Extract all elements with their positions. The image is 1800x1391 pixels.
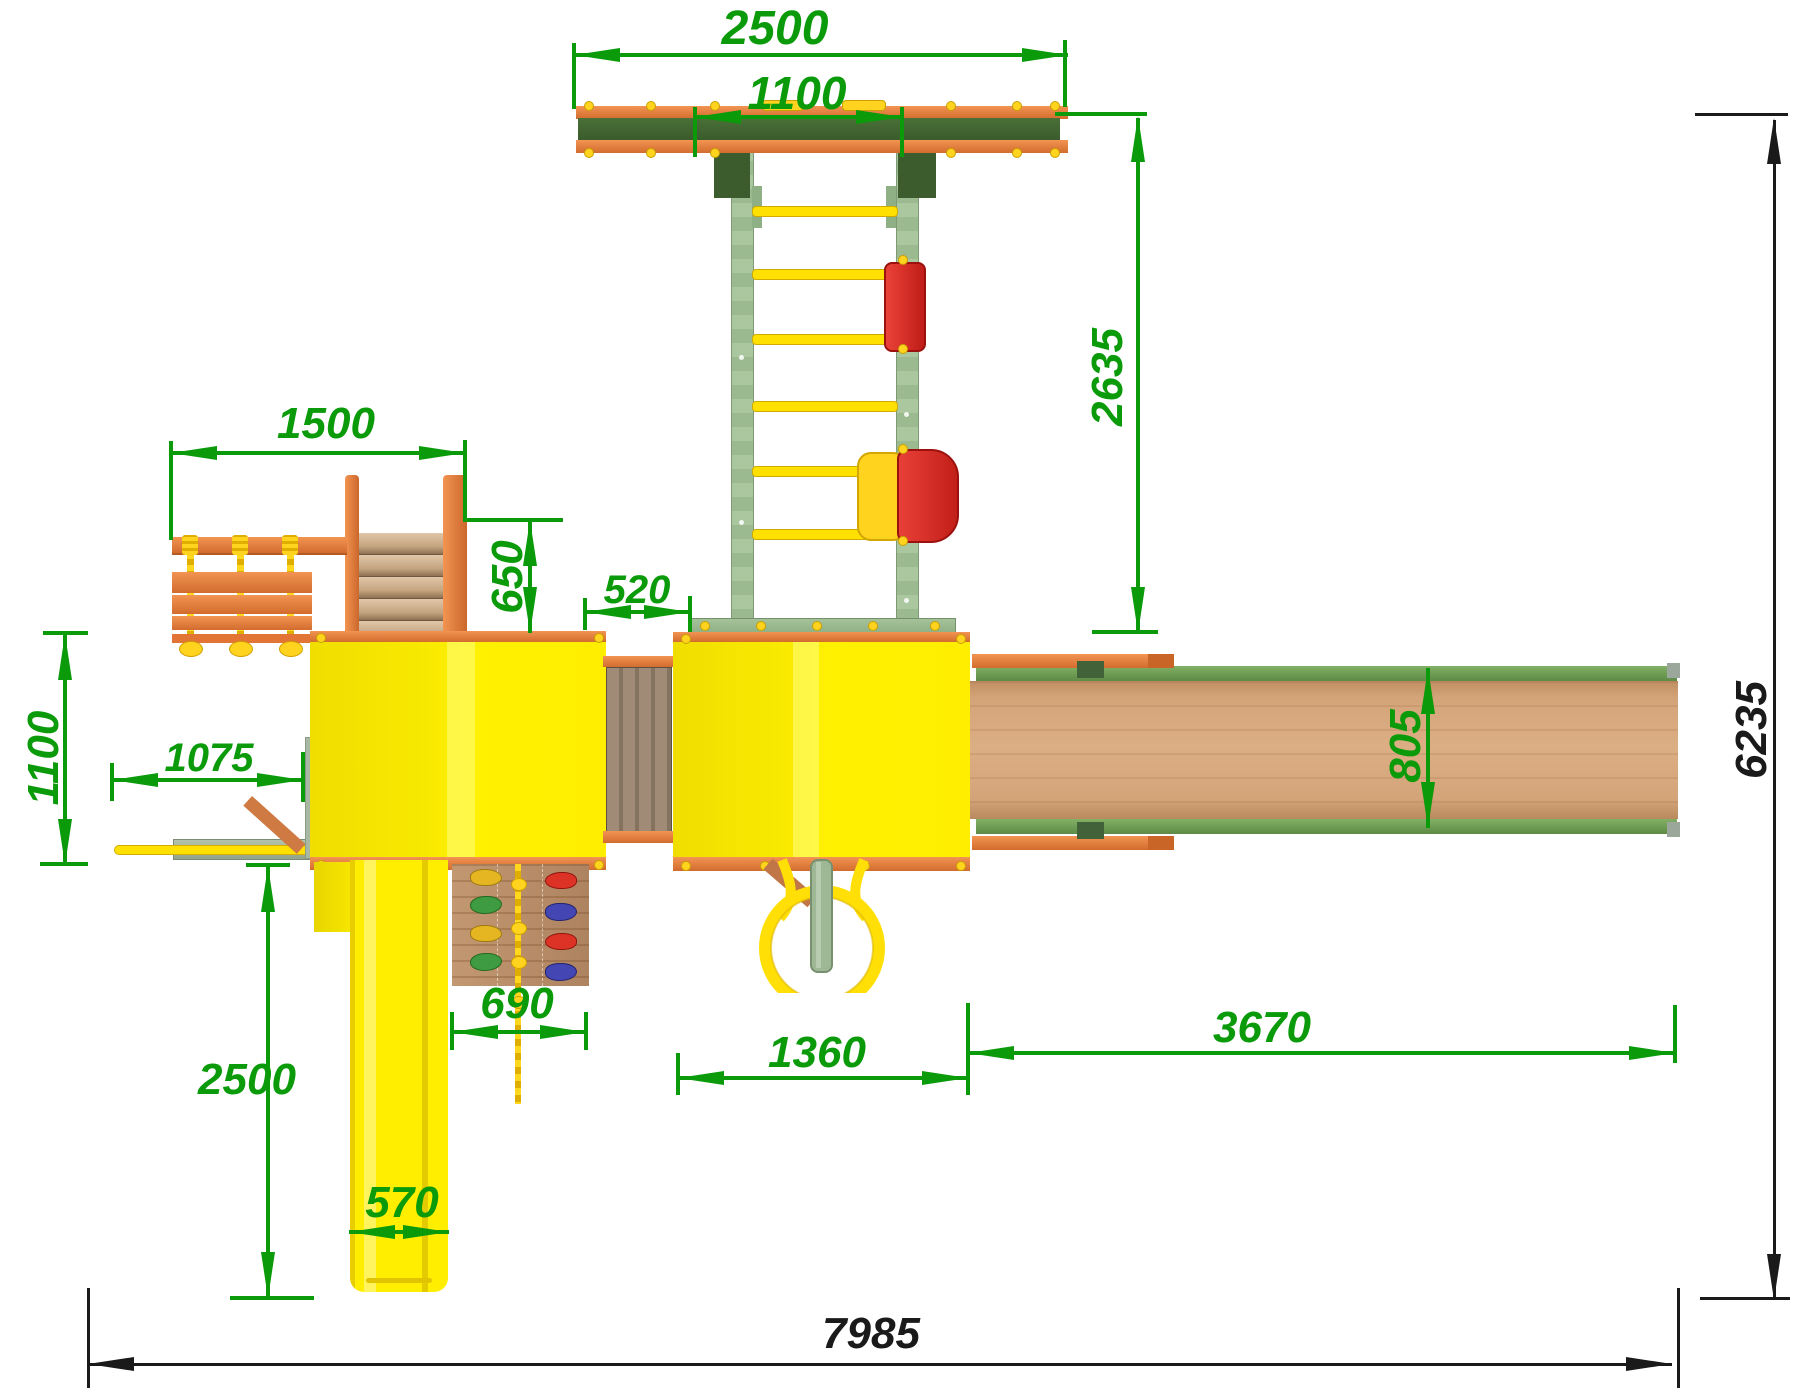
playground-plan-drawing: 2500 1100 2635 1500 650 (0, 0, 1800, 1391)
ext-line (1673, 1005, 1677, 1063)
stair-step (359, 555, 443, 578)
ext-line (1695, 113, 1788, 116)
ext-line (43, 631, 88, 635)
ext-line (583, 598, 587, 630)
dim-label: 1500 (277, 402, 375, 446)
bolt (646, 148, 656, 158)
ext-line (450, 1012, 454, 1050)
seat-clip (898, 444, 908, 454)
rope-wrap (282, 535, 298, 555)
bolt (646, 101, 656, 111)
ext-line (301, 752, 305, 802)
ladder-rung (752, 334, 898, 345)
bolt (930, 621, 940, 631)
bolt (1012, 101, 1022, 111)
bolt (584, 148, 594, 158)
platform1-shine (447, 642, 475, 857)
dim-label: 520 (604, 570, 671, 610)
ext-line (688, 596, 692, 632)
rope-ladder-beam (172, 537, 347, 555)
dim-label: 690 (480, 982, 553, 1026)
big-slide-rail-top (972, 654, 1174, 668)
ext-line (87, 1288, 90, 1388)
bolt (868, 621, 878, 631)
ext-line (1063, 40, 1067, 107)
rope-ladder-plank (172, 616, 312, 630)
ext-line (676, 1053, 680, 1095)
big-slide-connector (1077, 822, 1104, 839)
bolt (594, 860, 604, 870)
dim-label: 650 (486, 540, 530, 613)
stair-step (359, 599, 443, 622)
big-slide-rail-bottom (972, 836, 1174, 850)
ext-line (463, 518, 563, 522)
rope-wrap (232, 535, 248, 555)
small-slide-entry (314, 862, 354, 932)
ext-line (1677, 1288, 1680, 1388)
ext-line (230, 1296, 314, 1300)
ext-line (40, 862, 88, 866)
dim-label: 1075 (165, 738, 254, 778)
small-slide-end-line (366, 1278, 432, 1283)
stair-step (359, 533, 443, 556)
bolt (1012, 148, 1022, 158)
ext-line (572, 43, 576, 109)
bolt (956, 634, 966, 644)
tire-post-highlight (816, 862, 821, 968)
bridge-deck (606, 667, 672, 833)
bolt (756, 621, 766, 631)
tire-post (811, 860, 832, 972)
dim-label: 1360 (768, 1031, 866, 1075)
ext-line (900, 107, 904, 157)
bolt (812, 621, 822, 631)
bolt (946, 148, 956, 158)
bolt (681, 861, 691, 871)
ext-line (169, 441, 173, 540)
seat-clip (898, 255, 908, 265)
bolt (956, 861, 966, 871)
ext-line (1700, 1297, 1790, 1300)
bolt (1050, 101, 1060, 111)
dim-label: 3670 (1213, 1006, 1311, 1050)
rope-knot (179, 641, 203, 657)
big-slide-rail-top-cap (1148, 654, 1174, 668)
dim-label: 6235 (1730, 681, 1774, 779)
bolt (584, 101, 594, 111)
dim-label: 570 (365, 1181, 438, 1225)
rope-knot (511, 922, 527, 935)
dim-label: 2500 (722, 5, 829, 53)
ladder-rung (752, 269, 898, 280)
climb-hold-yellow (470, 925, 502, 942)
bolt (1050, 148, 1060, 158)
bridge-top-rail (603, 656, 673, 667)
ext-line (246, 863, 290, 867)
climb-hold-red (545, 933, 577, 950)
dim-label: 805 (1384, 709, 1428, 782)
rail-screw (904, 598, 909, 603)
climb-hold-yellow (470, 869, 502, 886)
ext-line (584, 1012, 588, 1050)
dim-label: 2500 (198, 1058, 296, 1102)
seat-clip (898, 344, 908, 354)
bridge-bottom-rail (603, 831, 673, 843)
rope-knot (279, 641, 303, 657)
stair-stringer-left (345, 475, 359, 643)
big-slide-end-tab (1667, 822, 1680, 837)
climb-hold-red (545, 872, 577, 889)
balance-beam-rod (114, 845, 314, 855)
ext-line (463, 440, 467, 522)
platform2-top-edge (673, 632, 970, 642)
rope-knot (511, 878, 527, 891)
platform1-top-edge (310, 631, 606, 642)
dim-label: 7985 (822, 1312, 920, 1356)
seat-clip (898, 536, 908, 546)
climbing-wall-seam (542, 864, 543, 986)
big-slide-end-tab (1667, 663, 1680, 678)
rail-screw (739, 355, 744, 360)
rope-knot (229, 641, 253, 657)
bolt (681, 634, 691, 644)
big-slide-connector (1077, 661, 1104, 678)
ext-line (110, 763, 114, 801)
tower-platform-2 (673, 642, 970, 857)
ladder-rung (752, 401, 898, 412)
baby-swing-seat-red (897, 449, 959, 543)
bolt (316, 633, 326, 643)
bolt (946, 101, 956, 111)
bolt (594, 633, 604, 643)
dim-label: 1100 (22, 711, 66, 806)
platform2-shine (793, 642, 819, 857)
flat-swing-seat (884, 262, 926, 352)
big-slide-bed (970, 681, 1678, 819)
rail-screw (904, 412, 909, 417)
ext-line (1092, 630, 1158, 634)
big-slide-rail-bottom-cap (1148, 836, 1174, 850)
rope-ladder-plank (172, 572, 312, 593)
bolt (700, 621, 710, 631)
dim-label: 2635 (1086, 328, 1130, 426)
rope-wrap (182, 535, 198, 555)
tire-swing (748, 858, 898, 993)
stair-step (359, 577, 443, 600)
dim-label: 1100 (748, 70, 847, 116)
ladder-rung (752, 206, 898, 217)
ext-line (693, 107, 697, 157)
swing-beam-core (578, 118, 1060, 142)
rope-ladder-plank (172, 595, 312, 614)
rope-knot (511, 956, 527, 969)
bolt (710, 148, 720, 158)
rail-screw (739, 520, 744, 525)
